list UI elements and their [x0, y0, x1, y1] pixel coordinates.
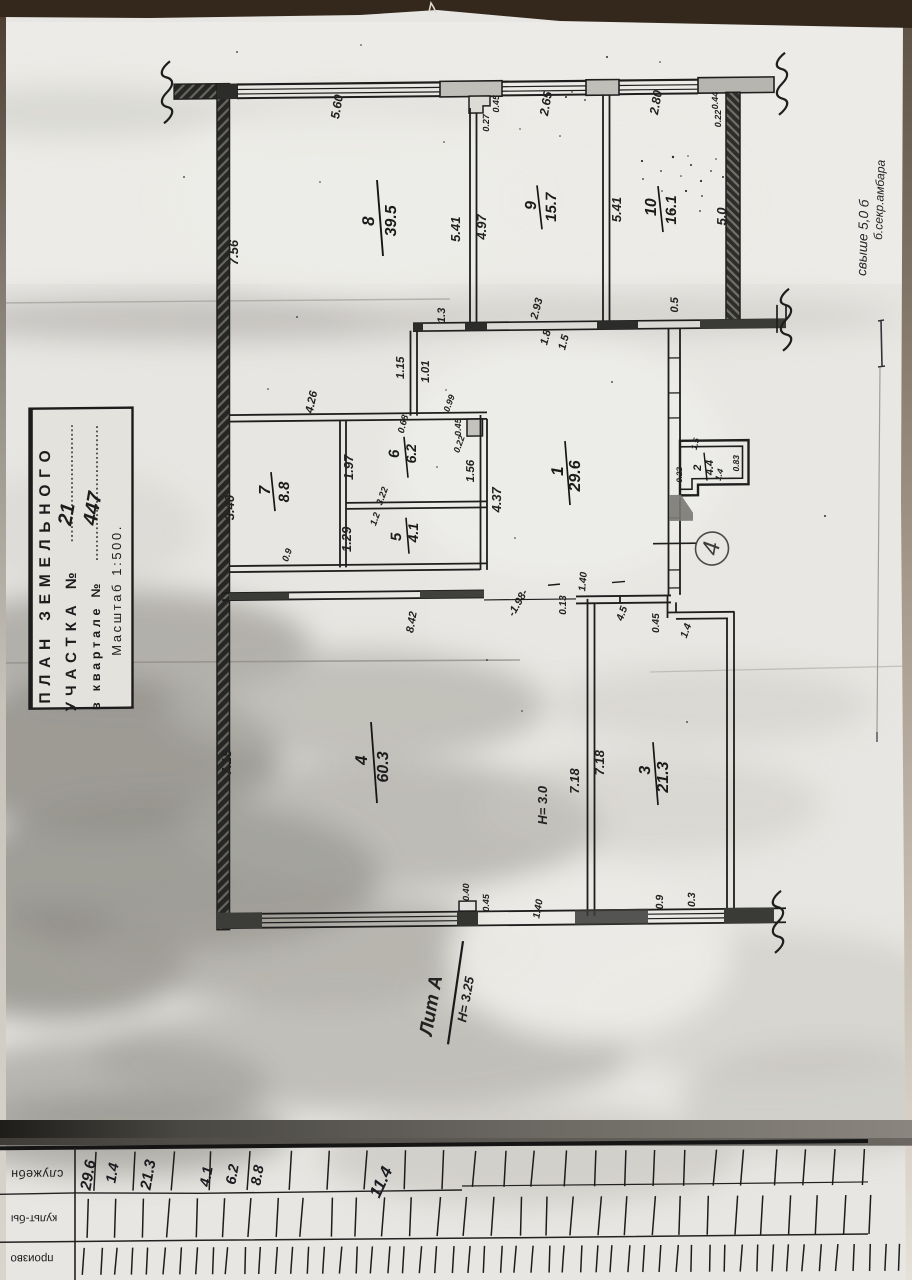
svg-text:9: 9	[523, 201, 540, 210]
svg-text:0.9: 0.9	[654, 895, 666, 910]
svg-text:7: 7	[257, 485, 274, 495]
svg-text:21.3: 21.3	[655, 761, 672, 793]
svg-text:б.секр.амбара: б.секр.амбара	[871, 159, 888, 240]
svg-text:4.37: 4.37	[489, 486, 504, 513]
svg-text:4: 4	[352, 755, 371, 766]
svg-text:7.56: 7.56	[226, 239, 241, 265]
svg-text:1.97: 1.97	[341, 454, 356, 480]
svg-text:7.18: 7.18	[567, 767, 582, 793]
svg-text:культ-бы: культ-бы	[11, 1212, 57, 1224]
svg-text:0.45: 0.45	[481, 893, 491, 912]
svg-text:4.1: 4.1	[405, 523, 421, 544]
svg-text:произво: произво	[10, 1252, 53, 1264]
svg-text:5.41: 5.41	[609, 197, 624, 222]
svg-text:0.3: 0.3	[686, 892, 698, 907]
svg-text:3.40: 3.40	[222, 494, 237, 520]
svg-text:1.3: 1.3	[436, 308, 448, 323]
svg-text:1.15: 1.15	[395, 356, 407, 379]
svg-text:служебн: служебн	[11, 1167, 64, 1181]
svg-text:в квартале №: в квартале №	[89, 580, 103, 710]
svg-text:6: 6	[386, 449, 403, 458]
svg-text:21: 21	[54, 502, 80, 529]
svg-text:УЧАСТКА №: УЧАСТКА №	[63, 566, 80, 711]
svg-text:5.0: 5.0	[714, 207, 729, 226]
svg-text:3: 3	[637, 766, 654, 775]
svg-text:1.29: 1.29	[339, 526, 354, 552]
svg-text:7.18: 7.18	[592, 749, 607, 775]
svg-text:свыше 5,0 б: свыше 5,0 б	[854, 199, 872, 276]
svg-text:4.97: 4.97	[474, 213, 489, 240]
svg-text:15.7: 15.7	[543, 192, 560, 222]
svg-text:0.22: 0.22	[713, 110, 723, 128]
svg-text:0.27: 0.27	[481, 113, 491, 132]
svg-text:1.01: 1.01	[420, 360, 432, 383]
svg-text:16.1: 16.1	[663, 195, 680, 224]
svg-text:0.45: 0.45	[491, 94, 501, 113]
svg-text:39.5: 39.5	[383, 204, 400, 236]
svg-text:10: 10	[643, 198, 660, 216]
svg-text:H= 3.0: H= 3.0	[535, 785, 550, 825]
svg-text:7.18: 7.18	[219, 749, 234, 775]
svg-text:8.8: 8.8	[276, 481, 293, 503]
svg-text:ПЛАН ЗЕМЕЛЬНОГО: ПЛАН ЗЕМЕЛЬНОГО	[37, 444, 54, 704]
svg-text:1.56: 1.56	[465, 459, 477, 482]
svg-text:5.41: 5.41	[448, 216, 463, 241]
svg-text:8: 8	[359, 216, 378, 226]
svg-text:0.45: 0.45	[453, 417, 463, 436]
svg-text:0.40: 0.40	[461, 883, 471, 901]
svg-text:0.83: 0.83	[731, 455, 741, 472]
svg-text:0.44: 0.44	[710, 92, 720, 110]
svg-text:1.40: 1.40	[577, 571, 590, 592]
svg-text:0.45: 0.45	[651, 613, 662, 633]
svg-text:60.3: 60.3	[375, 751, 392, 782]
svg-text:5: 5	[388, 532, 405, 541]
svg-text:0.22: 0.22	[675, 466, 684, 482]
svg-text:1: 1	[548, 466, 567, 476]
svg-text:Масштаб 1:500.: Масштаб 1:500.	[109, 524, 124, 656]
svg-text:0.13: 0.13	[558, 595, 569, 615]
svg-text:6.2: 6.2	[403, 444, 419, 464]
svg-text:2: 2	[692, 465, 704, 472]
svg-text:0.5: 0.5	[669, 296, 681, 312]
svg-text:29.6: 29.6	[567, 460, 584, 492]
